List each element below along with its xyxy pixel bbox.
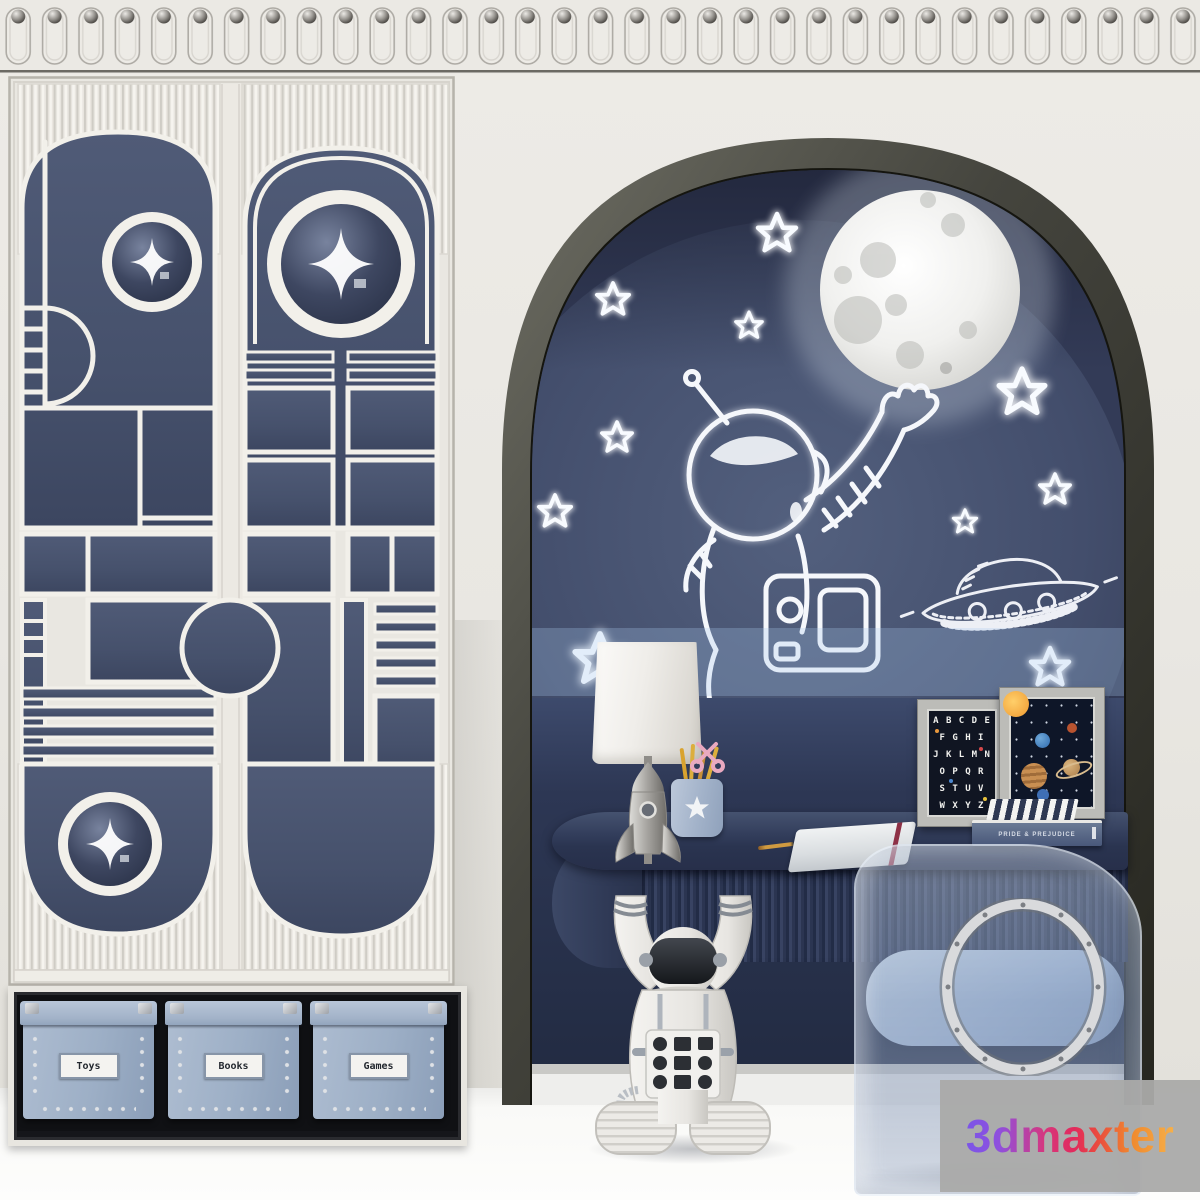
metal-corner <box>25 1003 39 1014</box>
storage-box-toys[interactable]: Toys <box>23 1001 154 1119</box>
storage-box-label: Books <box>204 1053 264 1079</box>
wardrobe-art-deco-panel <box>8 76 455 986</box>
jupiter-icon <box>1021 763 1047 789</box>
decor-dot <box>983 797 987 801</box>
storage-box-lid <box>310 1001 447 1025</box>
metal-corner <box>138 1003 152 1014</box>
crown-molding <box>0 0 1200 74</box>
storage-box-books[interactable]: Books <box>168 1001 299 1119</box>
shelf-compartments: Toys Books Games <box>17 995 458 1131</box>
astronaut-statue <box>588 890 778 1158</box>
kids-room-render: Toys Books Games <box>0 0 1200 1200</box>
porthole-window-large <box>267 190 415 338</box>
rivets <box>186 1105 281 1113</box>
earth-icon <box>1035 733 1050 748</box>
storage-shelf: Toys Books Games <box>8 986 467 1146</box>
pencil-cup <box>671 779 723 837</box>
metal-corner <box>315 1003 329 1014</box>
storage-box-games[interactable]: Games <box>313 1001 444 1119</box>
metal-corner <box>170 1003 184 1014</box>
watermark-badge: 3dmaxter <box>940 1080 1200 1192</box>
metal-corner <box>283 1003 297 1014</box>
wardrobe-door-right[interactable] <box>242 84 448 970</box>
porthole-window-lower <box>58 792 162 896</box>
rivets <box>138 1035 146 1099</box>
center-circle-motif <box>182 600 278 696</box>
rivets <box>31 1035 39 1099</box>
decor-dot <box>949 779 953 783</box>
metal-corner <box>428 1003 442 1014</box>
storage-box-label: Toys <box>59 1053 119 1079</box>
mars-icon <box>1067 723 1077 733</box>
rivets <box>321 1035 329 1099</box>
book: PRIDE & PREJUDICE <box>972 820 1102 846</box>
decor-dot <box>935 729 939 733</box>
rivets <box>331 1105 426 1113</box>
storage-box-lid <box>165 1001 302 1025</box>
decor-dot <box>979 747 983 751</box>
chair-porthole-ring <box>938 898 1108 1076</box>
door-divider <box>217 84 245 970</box>
sun-icon <box>1003 691 1029 717</box>
bookmark-tab <box>1092 827 1096 839</box>
scissors <box>690 738 726 774</box>
rivets <box>428 1035 436 1099</box>
wardrobe-door-left[interactable] <box>18 84 220 970</box>
statue-boots <box>596 1090 770 1154</box>
watermark-text: 3dmaxter <box>966 1109 1175 1163</box>
rivets <box>283 1035 291 1099</box>
storage-box-lid <box>20 1001 157 1025</box>
porthole-window-small <box>102 212 202 312</box>
rivets <box>176 1035 184 1099</box>
storage-box-label: Games <box>349 1053 409 1079</box>
star-icon <box>683 794 711 822</box>
rivets <box>41 1105 136 1113</box>
